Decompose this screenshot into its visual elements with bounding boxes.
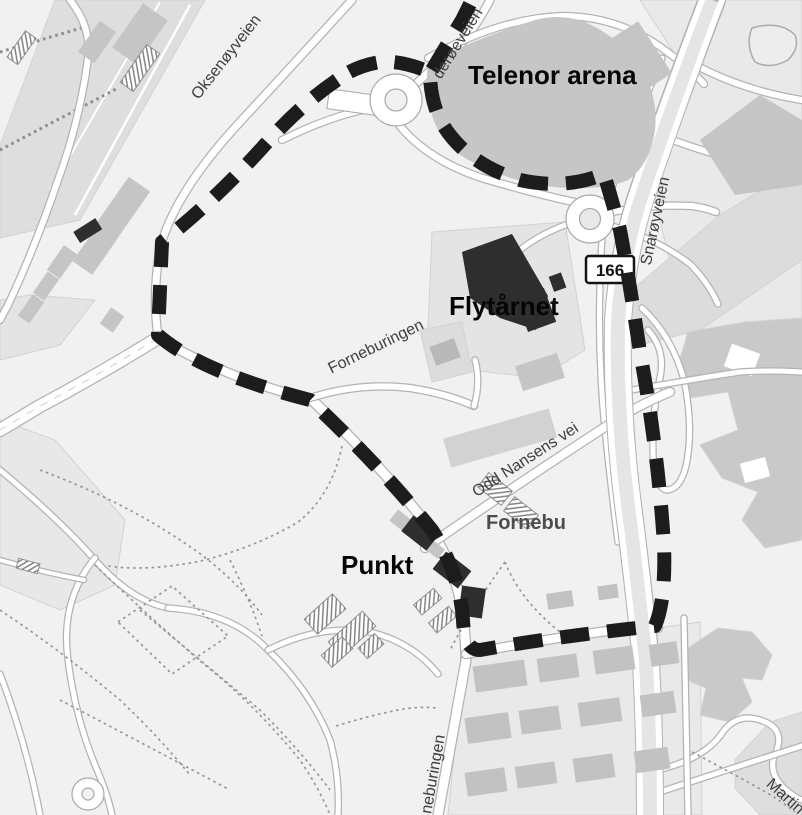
map-viewport[interactable]: 166 Telenor arena Flytårnet Punkt Forneb… [0,0,802,815]
telenor-arena-label: Telenor arena [468,60,637,90]
fornebu-label: Fornebu [486,512,566,534]
leaf-outline-area [749,25,796,65]
map-canvas[interactable]: 166 Telenor arena Flytårnet Punkt Forneb… [0,0,802,815]
roundabout-bottom-left [72,778,104,810]
road-badge-166-label: 166 [596,261,624,280]
punkt-label: Punkt [341,550,414,580]
flytarnet-label: Flytårnet [449,291,559,321]
